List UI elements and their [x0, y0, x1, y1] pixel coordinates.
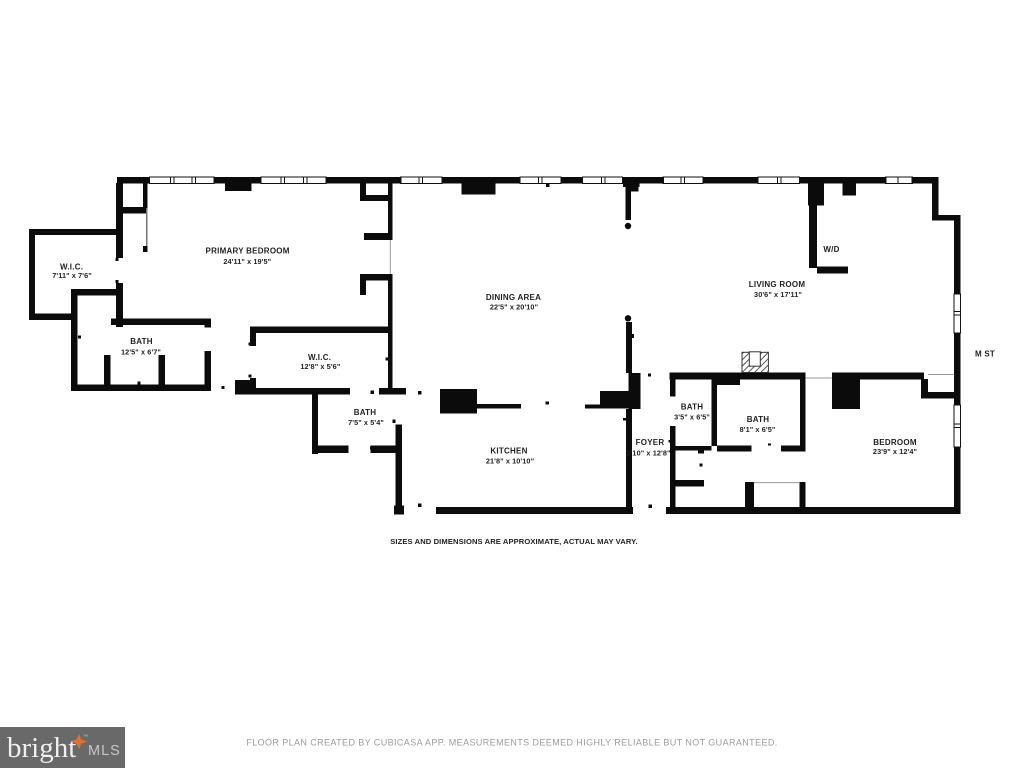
- svg-text:3'5" x 6'5": 3'5" x 6'5": [674, 413, 710, 422]
- svg-text:W/D: W/D: [823, 245, 839, 254]
- svg-text:23'9" x 12'4": 23'9" x 12'4": [873, 447, 917, 456]
- svg-text:21'8" x 10'10": 21'8" x 10'10": [486, 456, 534, 465]
- svg-text:22'5" x 20'10": 22'5" x 20'10": [490, 302, 538, 311]
- svg-text:KITCHEN: KITCHEN: [490, 447, 527, 456]
- svg-text:SIZES AND DIMENSIONS ARE APPRO: SIZES AND DIMENSIONS ARE APPROXIMATE, AC…: [390, 537, 637, 546]
- svg-text:12'5" x 6'7": 12'5" x 6'7": [121, 347, 161, 356]
- svg-text:BATH: BATH: [130, 337, 153, 346]
- svg-text:7'11" x 7'6": 7'11" x 7'6": [52, 271, 92, 280]
- svg-text:8'1" x 6'5": 8'1" x 6'5": [740, 425, 776, 434]
- svg-text:30'6" x 17'11": 30'6" x 17'11": [754, 290, 802, 299]
- svg-text:FLOOR PLAN CREATED BY CUBICASA: FLOOR PLAN CREATED BY CUBICASA APP. MEAS…: [246, 738, 777, 748]
- svg-text:DINING AREA: DINING AREA: [486, 293, 541, 302]
- svg-text:12'8" x 5'6": 12'8" x 5'6": [300, 362, 340, 371]
- svg-text:™: ™: [83, 734, 88, 740]
- svg-text:LIVING ROOM: LIVING ROOM: [749, 280, 806, 289]
- svg-text:FOYER: FOYER: [636, 438, 665, 447]
- svg-text:BEDROOM: BEDROOM: [873, 438, 917, 447]
- svg-text:MLS: MLS: [88, 743, 121, 759]
- svg-text:24'11" x 19'5": 24'11" x 19'5": [223, 257, 271, 266]
- svg-text:bright: bright: [7, 732, 76, 764]
- svg-text:M ST: M ST: [975, 350, 995, 359]
- svg-text:BATH: BATH: [681, 403, 704, 412]
- svg-text:PRIMARY BEDROOM: PRIMARY BEDROOM: [205, 247, 289, 256]
- svg-text:BATH: BATH: [354, 408, 377, 417]
- svg-text:BATH: BATH: [747, 415, 770, 424]
- svg-text:7'5" x 5'4": 7'5" x 5'4": [348, 418, 384, 427]
- svg-text:3'10" x 12'8": 3'10" x 12'8": [626, 448, 670, 457]
- svg-text:W.I.C.: W.I.C.: [308, 353, 331, 362]
